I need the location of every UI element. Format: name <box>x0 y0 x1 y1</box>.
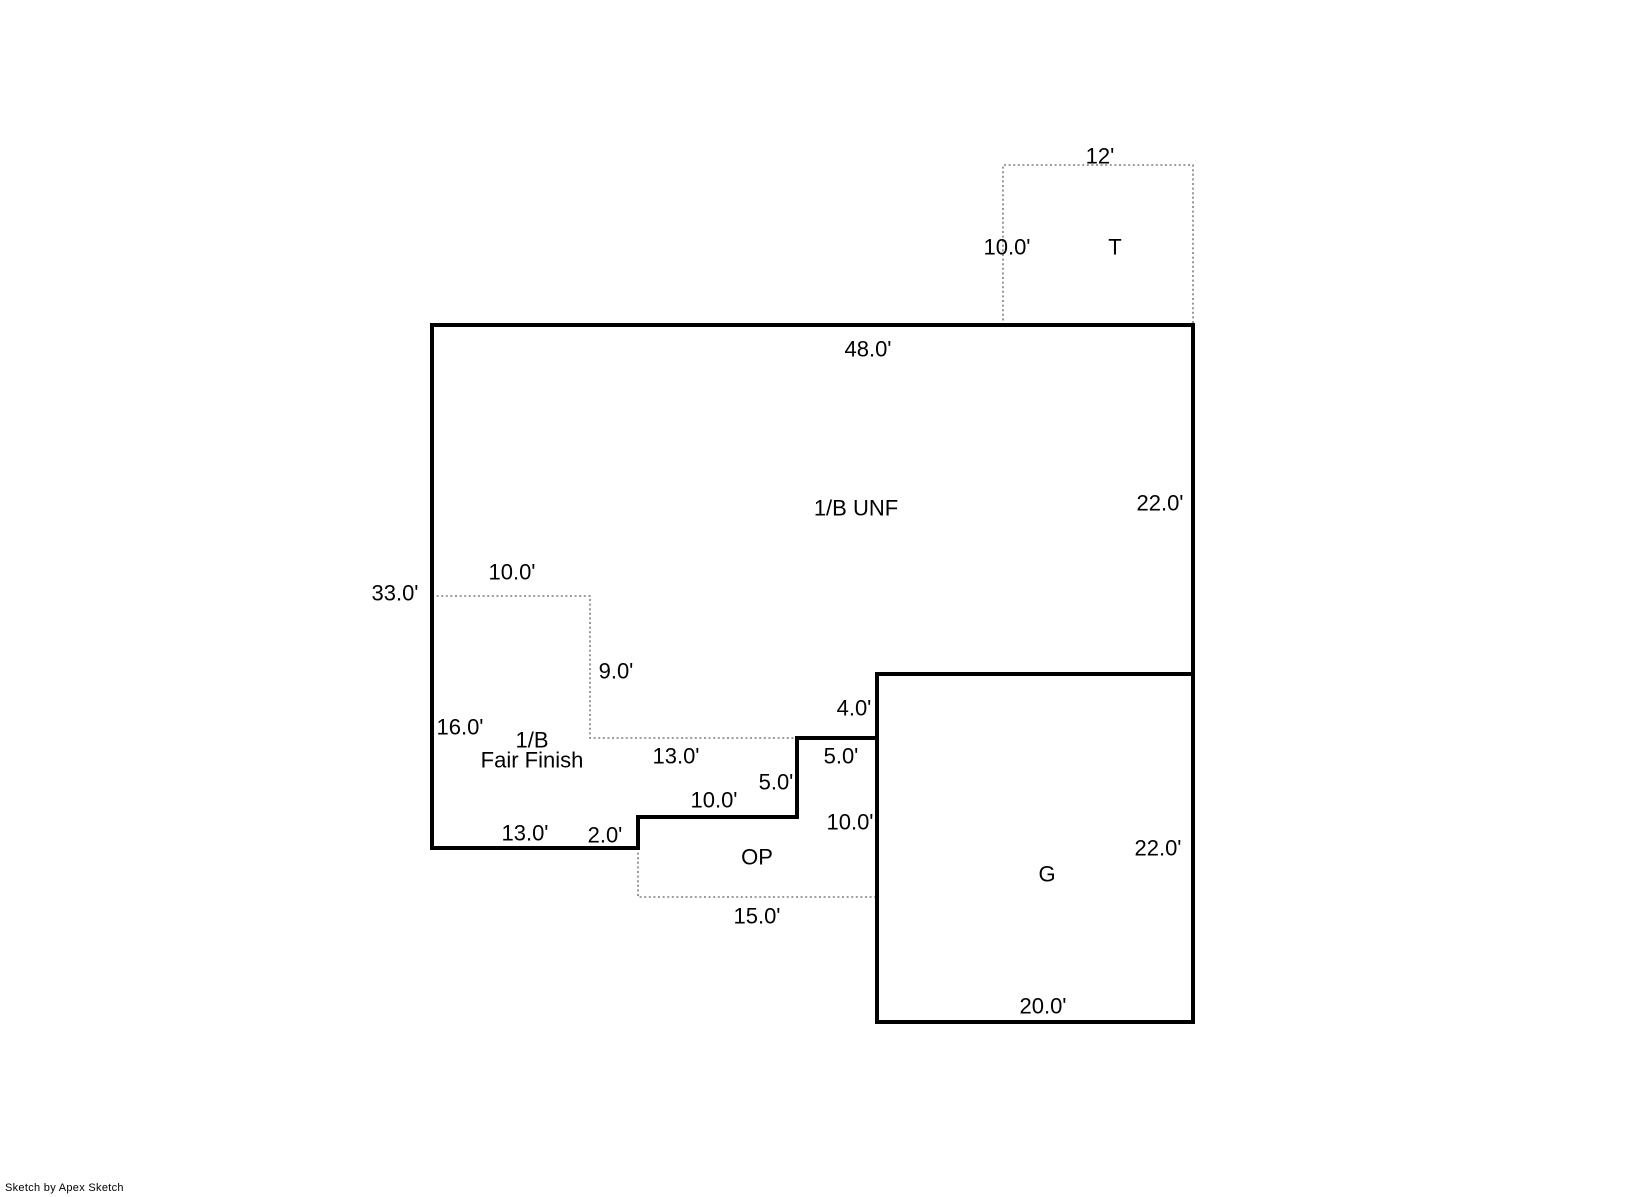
dimension-label: 10.0' <box>690 788 737 813</box>
area-label-fair-finish: Fair Finish <box>481 748 584 773</box>
sketch-credit: Sketch by Apex Sketch <box>5 1182 124 1194</box>
dimension-label: 13.0' <box>501 821 548 846</box>
dimension-label: 10.0' <box>826 810 873 835</box>
dimension-label: 5.0' <box>824 744 859 769</box>
dimension-label: 13.0' <box>652 744 699 769</box>
dimension-label: 15.0' <box>733 904 780 929</box>
dimension-label: 48.0' <box>844 337 891 362</box>
tank-outline <box>1003 165 1193 325</box>
area-label-unf: 1/B UNF <box>814 496 898 521</box>
dimension-label: 5.0' <box>759 770 794 795</box>
dimension-label: 22.0' <box>1136 491 1183 516</box>
dimension-label: 9.0' <box>599 659 634 684</box>
dimension-label: 12' <box>1086 144 1115 169</box>
dimension-label: 2.0' <box>588 823 623 848</box>
dimension-label: 20.0' <box>1019 994 1066 1019</box>
dimension-label: 4.0' <box>837 696 872 721</box>
dimension-label: 10.0' <box>488 560 535 585</box>
area-label-open-porch: OP <box>741 845 773 870</box>
dimension-label: 22.0' <box>1134 836 1181 861</box>
area-label-garage: G <box>1038 862 1055 887</box>
floorplan-page: 48.0'22.0'12'10.0'33.0'10.0'9.0'16.0'13.… <box>0 0 1632 1197</box>
floorplan-drawing: 48.0'22.0'12'10.0'33.0'10.0'9.0'16.0'13.… <box>0 0 1632 1197</box>
dimension-label: 10.0' <box>983 235 1030 260</box>
area-label-tank: T <box>1108 235 1121 260</box>
dimension-label: 33.0' <box>371 581 418 606</box>
dimension-label: 16.0' <box>436 715 483 740</box>
